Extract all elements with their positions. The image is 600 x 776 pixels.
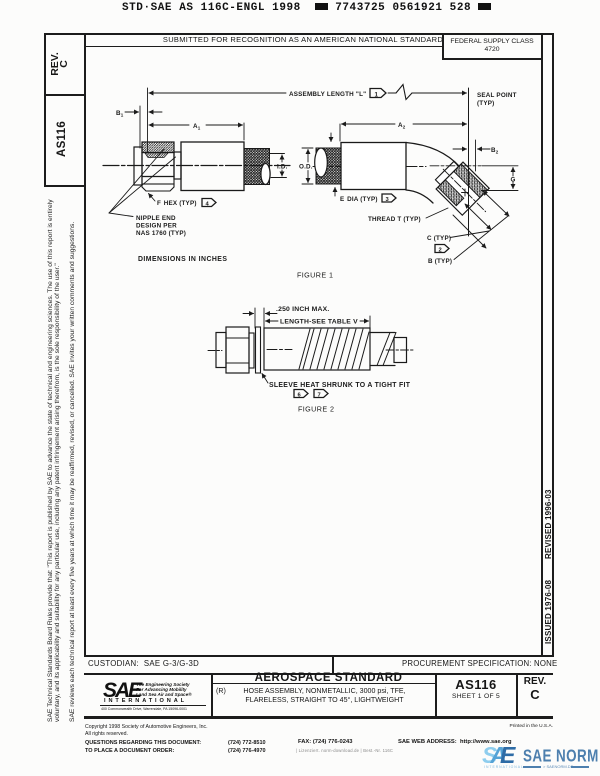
svg-text:G: G xyxy=(511,177,516,184)
svg-text:B1: B1 xyxy=(116,110,124,118)
svg-text:4: 4 xyxy=(206,202,210,208)
svg-text:1: 1 xyxy=(375,91,379,98)
svg-text:A1: A1 xyxy=(193,123,201,131)
svg-text:NAS 1760 (TYP): NAS 1760 (TYP) xyxy=(136,230,186,237)
svg-text:B2: B2 xyxy=(491,147,499,155)
svg-text:2: 2 xyxy=(439,248,442,254)
svg-text:LENGTH-SEE TABLE V: LENGTH-SEE TABLE V xyxy=(280,319,358,326)
svg-text:A2: A2 xyxy=(398,122,406,130)
svg-text:B (TYP): B (TYP) xyxy=(428,258,452,265)
svg-text:(TYP): (TYP) xyxy=(477,100,494,107)
svg-text:.250 INCH MAX.: .250 INCH MAX. xyxy=(276,306,329,313)
svg-text:NIPPLE END: NIPPLE END xyxy=(136,215,176,222)
svg-text:I.D.: I.D. xyxy=(277,164,288,171)
svg-text:ASSEMBLY LENGTH "L": ASSEMBLY LENGTH "L" xyxy=(289,91,366,98)
svg-text:F HEX (TYP): F HEX (TYP) xyxy=(157,200,197,207)
svg-text:DIMENSIONS IN INCHES: DIMENSIONS IN INCHES xyxy=(138,256,227,263)
svg-text:FIGURE 2: FIGURE 2 xyxy=(298,405,334,414)
svg-text:6: 6 xyxy=(298,393,302,399)
svg-text:FIGURE 1: FIGURE 1 xyxy=(297,271,333,280)
svg-text:SEAL POINT: SEAL POINT xyxy=(477,92,517,99)
svg-text:DESIGN PER: DESIGN PER xyxy=(136,223,177,230)
svg-text:E DIA (TYP): E DIA (TYP) xyxy=(340,196,378,203)
svg-text:SLEEVE HEAT SHRUNK TO A TIGHT: SLEEVE HEAT SHRUNK TO A TIGHT FIT xyxy=(269,382,411,389)
svg-text:O.D.: O.D. xyxy=(299,164,313,171)
svg-text:THREAD T (TYP): THREAD T (TYP) xyxy=(368,216,421,223)
svg-text:C (TYP): C (TYP) xyxy=(427,235,451,242)
svg-text:3: 3 xyxy=(386,197,390,203)
svg-text:7: 7 xyxy=(318,393,321,399)
